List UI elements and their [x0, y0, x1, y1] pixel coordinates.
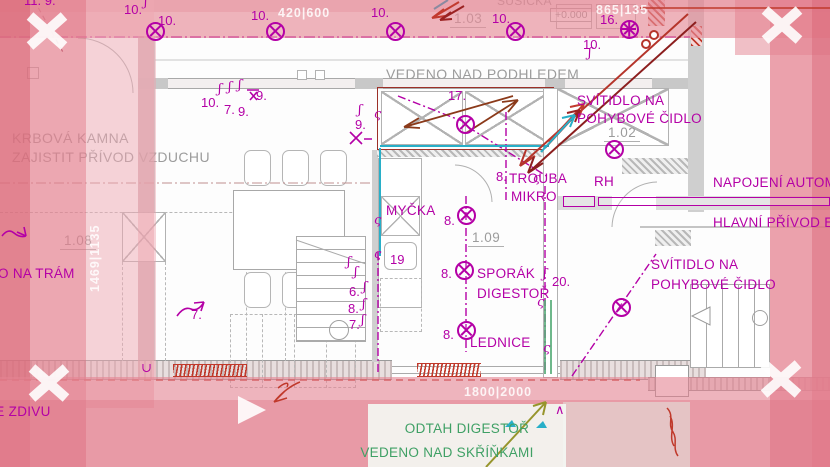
light-symbol: [612, 298, 631, 317]
light-symbol: [266, 22, 285, 41]
switch-squiggle-icon: ς: [374, 248, 381, 261]
switch-squiggle-icon: ʃ: [361, 314, 365, 327]
light-symbol: [506, 22, 525, 41]
circuit-number: 7.: [191, 307, 202, 322]
label-main-supply: HLAVNÍ PŘÍVOD ELEK: [713, 215, 830, 230]
switch-squiggle-icon: ʃ: [228, 81, 232, 94]
floor-plan-drawing: KRBOVÁ KAMNAZAJISTIT PŘÍVOD VZDUCHUVEDEN…: [0, 0, 830, 467]
switch-squiggle-icon: ʃ: [363, 281, 367, 294]
circuit-number: 8.: [444, 213, 455, 228]
dimension-label: 1469|1135: [88, 225, 102, 292]
label-fridge: LEDNICE: [470, 335, 531, 350]
supply-conduit: [598, 197, 830, 206]
label-on-beam: VEDENO NA TRÁM: [0, 266, 75, 281]
label-motion-light-2: SVÍTIDLO NA: [651, 257, 738, 272]
note-hood-exhaust-line2: VEDENO NAD SKŘÍŇKAMI: [348, 445, 546, 460]
light-symbol: [605, 140, 624, 159]
switch-squiggle-icon: ʃ: [218, 83, 222, 96]
circuit-number: 11. 9.: [24, 0, 56, 8]
circuit-number: 8.: [496, 169, 507, 184]
light-symbol: [457, 321, 476, 340]
switch-squiggle-icon: ∪: [141, 362, 152, 375]
note-hood-exhaust-line1: ODTAH DIGESTOŘ: [368, 421, 566, 436]
switch-squiggle-icon: ʃ: [238, 79, 242, 92]
label-dishwasher: MYČKA: [386, 203, 436, 218]
switchboard-panel: [563, 196, 595, 207]
switch-squiggle-icon: ʃ: [347, 256, 351, 269]
light-symbol: [457, 206, 476, 225]
switch-squiggle-icon: ς: [537, 296, 544, 309]
circuit-number: 7.: [224, 102, 235, 117]
switch-squiggle-icon: ʃ: [588, 47, 592, 60]
switch-squiggle-icon: ς: [533, 172, 540, 185]
circuit-number: 9.: [256, 88, 267, 103]
circuit-number: 6.: [349, 284, 360, 299]
light-symbol: [455, 261, 474, 280]
label-motion-light-2b: POHYBOVÉ ČIDLO: [651, 277, 776, 292]
circuit-number: 7.: [349, 317, 360, 332]
label-motion-light-1b: POHYBOVÉ ČIDLO: [577, 111, 702, 126]
switch-squiggle-icon: ʃ: [354, 266, 358, 279]
circuit-number: 9.: [238, 104, 249, 119]
dimension-label: 865|135: [596, 3, 648, 17]
circuit-number: 19: [390, 252, 404, 267]
circuit-number: 17.: [448, 88, 466, 103]
circuit-number: 10.: [371, 5, 389, 20]
label-switchboard: RH: [594, 174, 614, 189]
label-in-masonry: VE ZDIVU: [0, 404, 51, 419]
circuit-number: 20.: [552, 274, 570, 289]
switch-squiggle-icon: ʃ: [144, 0, 148, 9]
switch-squiggle-icon: ʃ: [358, 104, 362, 117]
red-scribble-top: [432, 0, 464, 20]
circuit-number: 8.: [348, 301, 359, 316]
label-microwave: MIKRO: [511, 189, 557, 204]
circuit-number: 9.: [355, 117, 366, 132]
switch-squiggle-icon: ς: [543, 342, 550, 355]
switch-squiggle-icon: ʃ: [362, 298, 366, 311]
switch-squiggle-icon: ς: [374, 108, 381, 121]
light-symbol: [146, 22, 165, 41]
circuit-number: 10.: [124, 2, 142, 17]
white-triangle-mark: [238, 396, 266, 424]
circuit-number: 10.: [583, 37, 601, 52]
markup-layer: [0, 0, 830, 467]
label-automation-feed: NAPOJENÍ AUTOMATI: [713, 175, 830, 190]
mark-caret: ∧: [555, 402, 565, 418]
circuit-number: 8.: [443, 327, 454, 342]
dimension-label: 1800|2000: [464, 385, 532, 399]
label-stove: SPORÁK: [477, 266, 535, 281]
circuit-number: 10.: [492, 11, 510, 26]
switch-squiggle-icon: ς: [374, 214, 381, 227]
light-symbol: [456, 115, 475, 134]
circuit-number: 10.: [201, 95, 219, 110]
circuit-number: 8.: [441, 266, 452, 281]
light-symbol: [620, 20, 639, 39]
light-symbol: [386, 22, 405, 41]
magenta-wavy-arrows: [2, 90, 372, 316]
dimension-label: 420|600: [278, 6, 330, 20]
label-motion-light-1: SVÍTIDLO NA: [577, 93, 664, 108]
circuit-number: 10.: [251, 8, 269, 23]
switch-squiggle-icon: ʃ: [543, 268, 547, 281]
